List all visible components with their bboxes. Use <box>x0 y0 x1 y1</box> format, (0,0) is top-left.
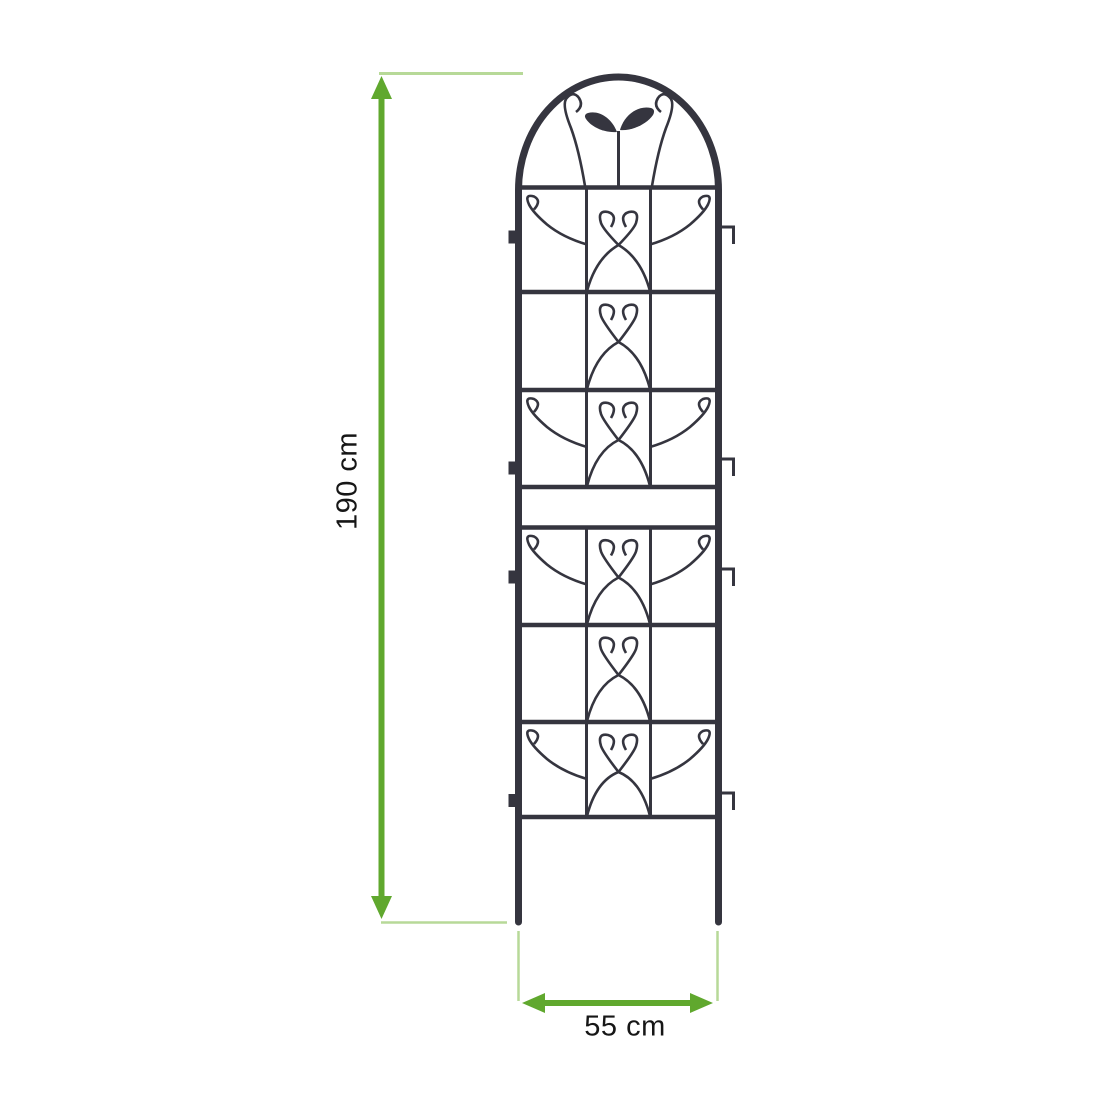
leaf-icon <box>585 107 654 132</box>
dimension-extension-lines <box>379 74 718 1002</box>
dimension-arrows <box>371 76 713 1013</box>
product-dimension-diagram: 190 cm 55 cm <box>0 0 1100 1100</box>
vertical-double-arrow-icon <box>371 76 392 919</box>
diagram-canvas <box>0 0 1100 1100</box>
trellis-illustration <box>509 77 734 922</box>
width-dimension-label: 55 cm <box>584 1011 665 1044</box>
trellis-horizontal-bars <box>520 188 717 818</box>
trellis-frame <box>519 77 719 922</box>
trellis-right-hooks <box>722 227 734 810</box>
heart-scroll-motifs <box>587 212 650 816</box>
height-dimension-label: 190 cm <box>332 432 365 530</box>
